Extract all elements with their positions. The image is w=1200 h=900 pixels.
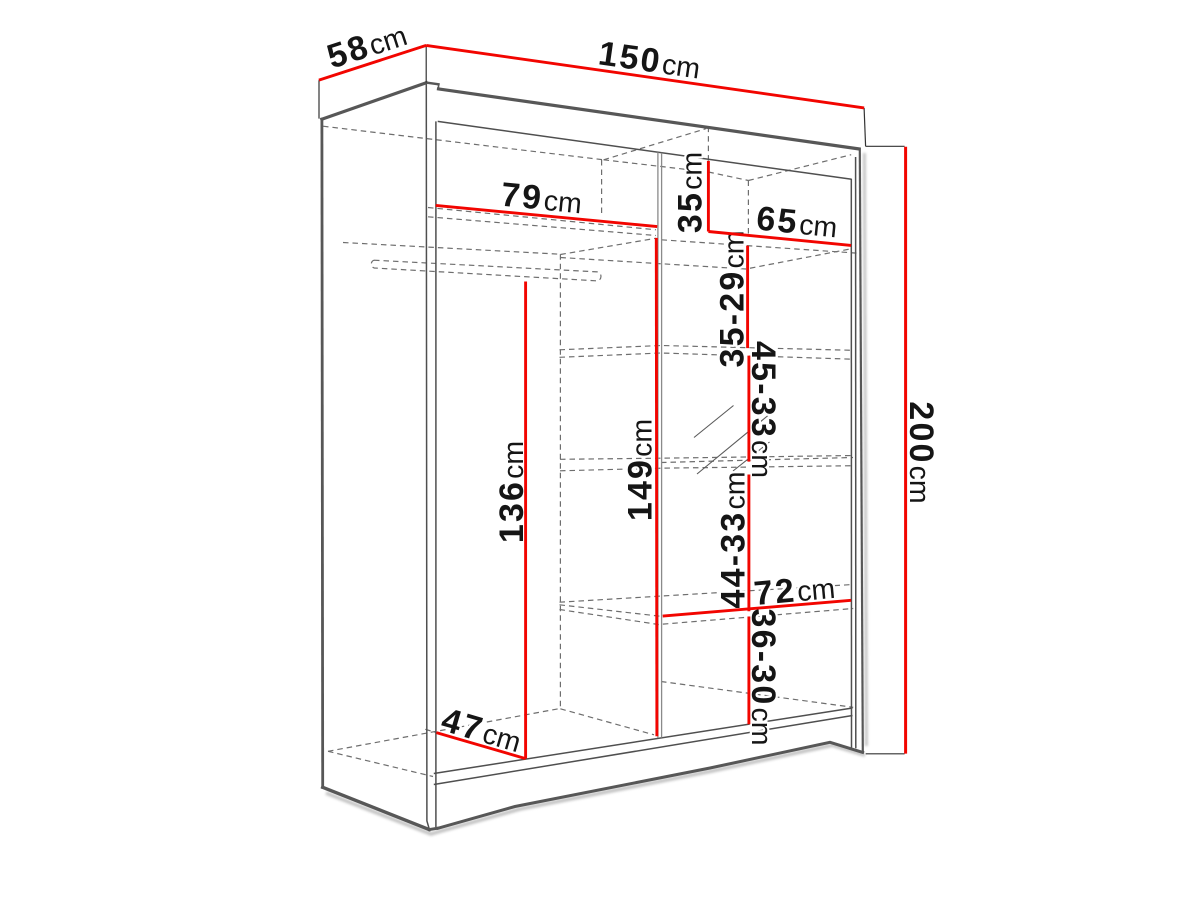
svg-text:200cm: 200cm bbox=[902, 401, 940, 503]
svg-text:44-33cm: 44-33cm bbox=[715, 472, 753, 609]
svg-text:35cm: 35cm bbox=[672, 152, 710, 233]
svg-text:149cm: 149cm bbox=[622, 419, 660, 521]
